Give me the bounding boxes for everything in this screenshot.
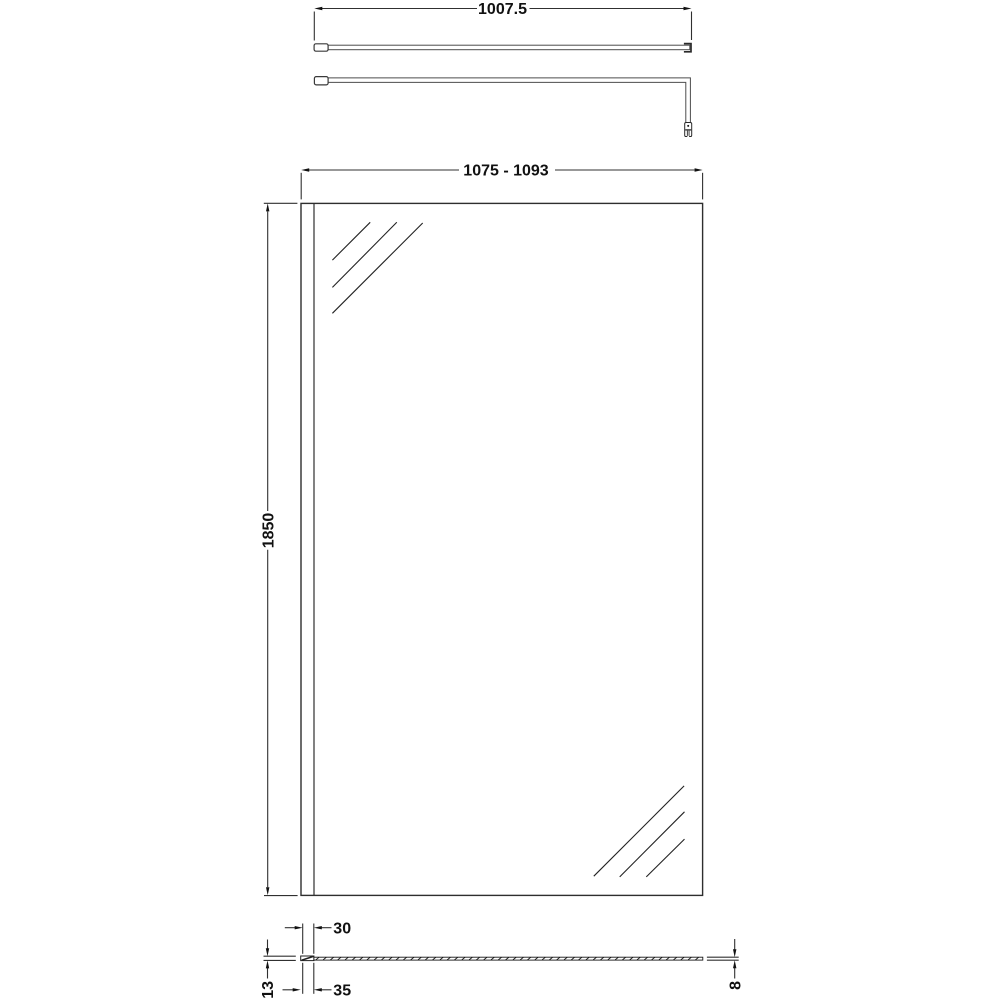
svg-text:1007.5: 1007.5 [478, 1, 527, 18]
svg-text:1850: 1850 [260, 513, 277, 549]
svg-text:35: 35 [333, 983, 351, 1000]
svg-text:30: 30 [333, 920, 351, 937]
svg-text:13: 13 [260, 981, 277, 999]
svg-text:8: 8 [727, 981, 744, 990]
svg-text:1075 - 1093: 1075 - 1093 [463, 163, 549, 180]
